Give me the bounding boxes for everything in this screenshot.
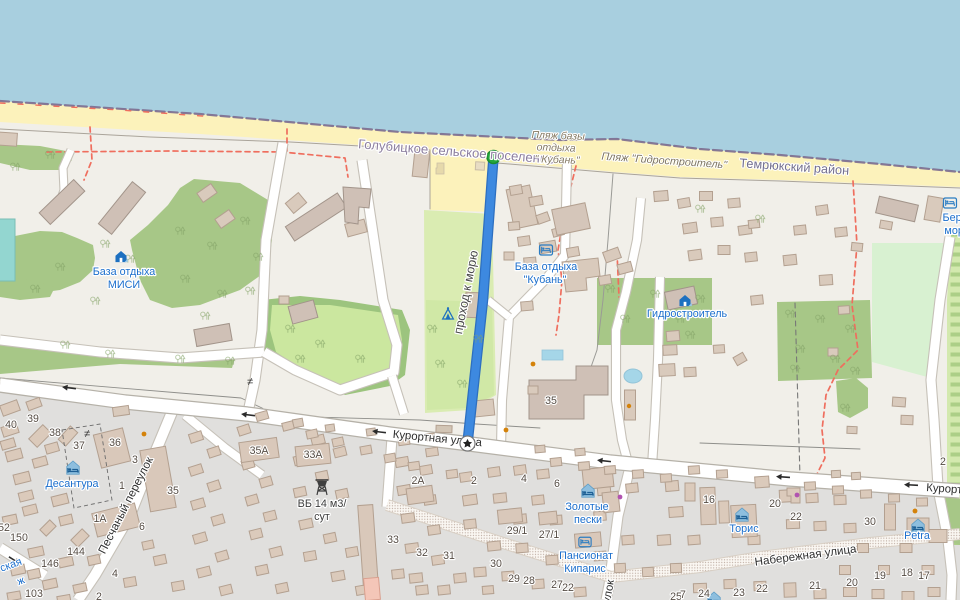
svg-text:пески: пески — [574, 514, 602, 526]
svg-text:6: 6 — [139, 521, 145, 533]
svg-text:32: 32 — [416, 547, 428, 559]
svg-text:2А: 2А — [412, 475, 426, 487]
svg-text:Десантура: Десантура — [45, 478, 98, 490]
svg-text:ВБ 14 м3/: ВБ 14 м3/ — [298, 498, 347, 510]
svg-text:40: 40 — [5, 419, 17, 431]
svg-text:" Кубань": " Кубань" — [534, 153, 581, 167]
svg-text:22: 22 — [790, 511, 802, 523]
svg-text:"Кубань": "Кубань" — [523, 274, 566, 286]
svg-text:2: 2 — [940, 456, 946, 468]
svg-text:29/1: 29/1 — [507, 525, 528, 537]
svg-text:23: 23 — [733, 587, 745, 599]
svg-text:4: 4 — [521, 473, 527, 485]
svg-text:21: 21 — [809, 580, 821, 592]
svg-text:≠: ≠ — [247, 376, 253, 388]
svg-text:≠: ≠ — [84, 428, 90, 440]
svg-text:35: 35 — [167, 485, 179, 497]
svg-text:Торис: Торис — [729, 523, 759, 535]
svg-text:7: 7 — [680, 589, 686, 600]
svg-text:Кипарис: Кипарис — [564, 563, 606, 575]
svg-text:Пансионат: Пансионат — [559, 550, 613, 562]
svg-text:103: 103 — [25, 588, 43, 600]
svg-text:19: 19 — [874, 570, 886, 582]
svg-text:База отдыха: База отдыха — [515, 261, 578, 273]
svg-text:2: 2 — [471, 475, 477, 487]
svg-text:52: 52 — [0, 522, 10, 534]
svg-text:144: 144 — [67, 546, 85, 558]
svg-text:33А: 33А — [304, 449, 324, 461]
svg-text:28: 28 — [523, 575, 535, 587]
svg-text:17: 17 — [918, 570, 930, 582]
svg-text:30: 30 — [864, 516, 876, 528]
svg-text:База отдыха: База отдыха — [93, 266, 156, 278]
svg-text:29: 29 — [508, 573, 520, 585]
svg-text:36: 36 — [109, 437, 121, 449]
svg-text:Золотые: Золотые — [565, 501, 608, 513]
svg-text:4: 4 — [112, 568, 118, 580]
svg-text:3: 3 — [132, 454, 138, 466]
svg-text:30: 30 — [490, 558, 502, 570]
svg-text:38: 38 — [49, 427, 61, 439]
svg-text:моря: моря — [944, 225, 960, 237]
svg-text:20: 20 — [769, 498, 781, 510]
svg-text:39: 39 — [27, 413, 39, 425]
svg-text:16: 16 — [703, 494, 715, 506]
svg-text:27/1: 27/1 — [539, 529, 560, 541]
svg-text:Petra: Petra — [904, 530, 930, 542]
svg-text:33: 33 — [387, 534, 399, 546]
svg-text:37: 37 — [73, 440, 85, 452]
svg-text:1А: 1А — [94, 513, 108, 525]
svg-text:Гидростроитель: Гидростроитель — [647, 308, 728, 320]
svg-text:2: 2 — [96, 591, 102, 600]
svg-text:22: 22 — [562, 582, 574, 594]
svg-text:35А: 35А — [250, 445, 270, 457]
svg-text:сут: сут — [314, 511, 330, 523]
svg-text:МИСИ: МИСИ — [108, 279, 140, 291]
svg-text:150: 150 — [10, 532, 28, 544]
svg-text:24: 24 — [698, 588, 710, 600]
svg-text:20: 20 — [846, 577, 858, 589]
svg-text:22: 22 — [756, 583, 768, 595]
svg-text:1: 1 — [119, 480, 125, 492]
svg-text:Берег: Берег — [942, 212, 960, 224]
svg-text:35: 35 — [545, 395, 557, 407]
svg-text:146: 146 — [41, 558, 59, 570]
svg-text:6: 6 — [554, 478, 560, 490]
svg-text:31: 31 — [443, 550, 455, 562]
svg-text:18: 18 — [901, 567, 913, 579]
